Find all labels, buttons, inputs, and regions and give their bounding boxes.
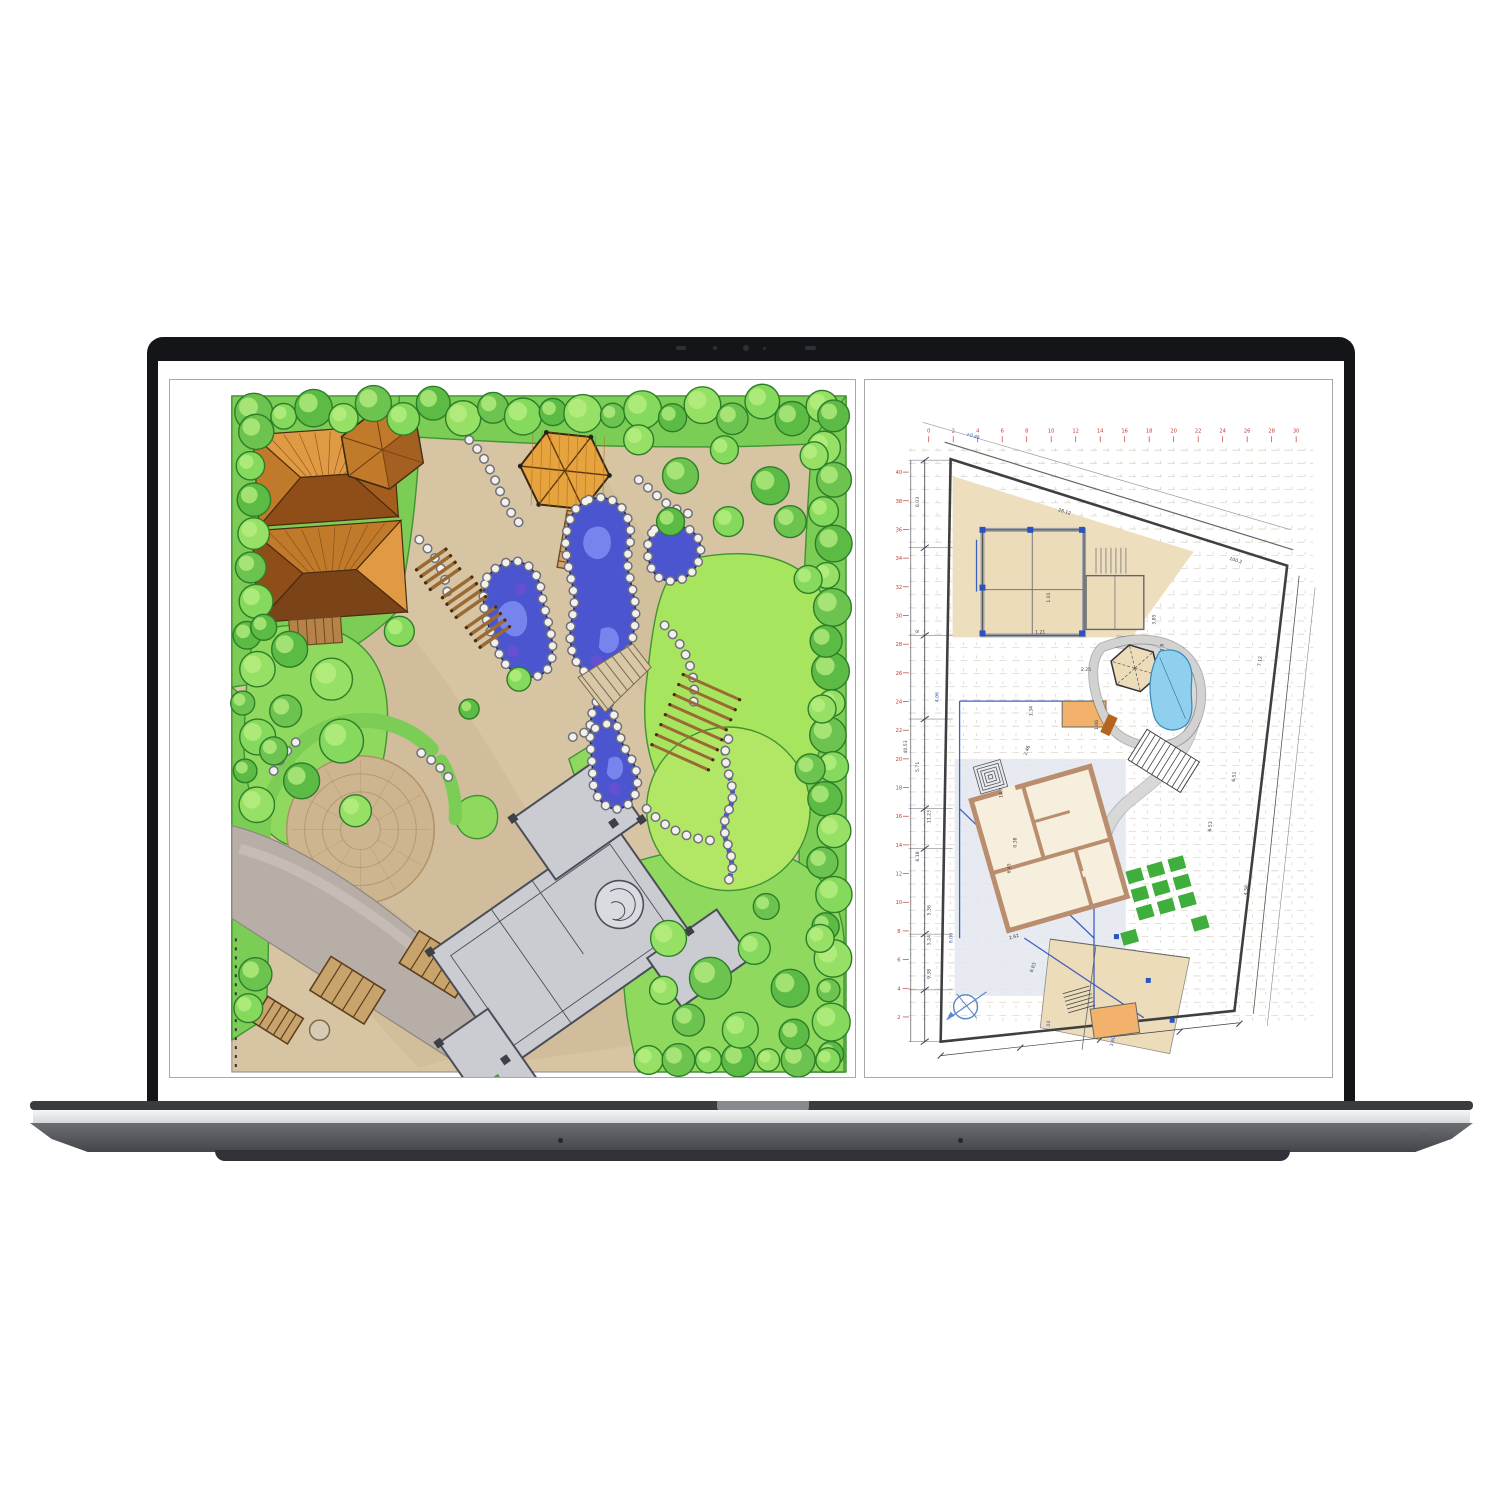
right-drawing-panel: 0246810121416182022242628304038363432302… [864,379,1333,1078]
svg-text:6: 6 [1001,428,1004,434]
svg-text:6.51: 6.51 [1231,771,1238,782]
roof-houses [252,404,427,646]
svg-text:6.18: 6.18 [915,851,921,861]
svg-text:34: 34 [896,556,903,562]
svg-text:32: 32 [896,585,903,591]
svg-text:2.25: 2.25 [1081,667,1091,673]
svg-text:8: 8 [897,929,900,935]
svg-text:11.23: 11.23 [927,810,933,823]
svg-text:8: 8 [915,630,921,633]
svg-text:40.53: 40.53 [903,740,909,753]
sketch-root [231,384,852,1077]
webcam-led-icon [763,347,766,350]
svg-text:28: 28 [1268,428,1275,434]
left-drawing-panel [169,379,856,1078]
svg-text:16: 16 [1121,428,1128,434]
webcam-mic-icon [805,346,816,350]
svg-text:30: 30 [1293,428,1300,434]
svg-text:6.03: 6.03 [915,497,921,507]
base-bottom-lip [215,1150,1290,1161]
svg-text:9.38: 9.38 [927,969,933,979]
cad-plan-image: 0246810121416182022242628304038363432302… [865,380,1332,1077]
svg-text:8: 8 [1025,428,1028,434]
svg-text:28: 28 [896,642,903,648]
svg-text:0.38: 0.38 [1012,837,1018,847]
base-screw-icon [1422,1134,1426,1138]
svg-text:4.58: 4.58 [1243,885,1250,896]
laptop-product-photo: 0246810121416182022242628304038363432302… [0,0,1500,1500]
base-screw-icon [78,1135,82,1139]
svg-text:24: 24 [1219,428,1226,434]
svg-text:18: 18 [1146,428,1153,434]
svg-text:18: 18 [896,786,903,792]
svg-text:36: 36 [896,527,903,533]
svg-text:40: 40 [896,470,903,476]
svg-text:1.06: 1.06 [1094,720,1100,730]
svg-text:0.00: 0.00 [949,933,955,943]
laptop-screen: 0246810121416182022242628304038363432302… [147,337,1355,1110]
base-front [30,1123,1473,1152]
svg-text:6: 6 [897,958,900,964]
svg-text:16: 16 [896,814,903,820]
svg-text:7.12: 7.12 [1257,656,1264,667]
svg-text:1.34: 1.34 [1028,706,1034,716]
svg-text:5.71: 5.71 [915,762,921,772]
svg-text:24: 24 [896,700,903,706]
svg-text:1.04: 1.04 [1046,1021,1052,1031]
svg-text:3.85: 3.85 [1152,614,1158,624]
svg-text:10: 10 [896,900,903,906]
svg-text:4.06: 4.06 [935,692,941,702]
base-screw-icon [958,1138,963,1143]
svg-text:2: 2 [897,1015,900,1021]
webcam-icon [676,346,686,350]
svg-text:22: 22 [1195,428,1202,434]
base-screw-icon [558,1138,563,1143]
svg-text:4: 4 [897,986,900,992]
svg-text:1.21: 1.21 [1035,629,1045,635]
svg-text:0: 0 [927,428,930,434]
svg-text:20: 20 [1170,428,1177,434]
svg-text:5.36: 5.36 [927,905,933,915]
svg-text:20: 20 [896,757,903,763]
svg-text:1.01: 1.01 [1046,592,1052,602]
svg-text:1.8: 1.8 [1160,644,1166,651]
svg-text:4: 4 [976,428,979,434]
webcam-dot-icon [713,346,717,350]
landscape-sketch-image [170,380,855,1077]
svg-text:26: 26 [1244,428,1251,434]
svg-text:5.24: 5.24 [927,935,933,945]
svg-text:12: 12 [1072,428,1079,434]
svg-text:14.7: 14.7 [998,788,1004,798]
svg-text:2: 2 [952,428,955,434]
svg-text:26: 26 [896,671,903,677]
laptop-display: 0246810121416182022242628304038363432302… [158,361,1344,1102]
base-deck-edge [33,1110,1470,1123]
webcam-lens-icon [743,345,749,351]
svg-text:10: 10 [1048,428,1055,434]
svg-text:14: 14 [896,843,903,849]
svg-text:6.45: 6.45 [1006,863,1012,873]
svg-text:38: 38 [896,499,903,505]
svg-text:22: 22 [896,728,903,734]
svg-text:14: 14 [1097,428,1104,434]
svg-text:30: 30 [896,613,903,619]
svg-text:6.53: 6.53 [1207,821,1214,832]
svg-text:12: 12 [896,872,903,878]
